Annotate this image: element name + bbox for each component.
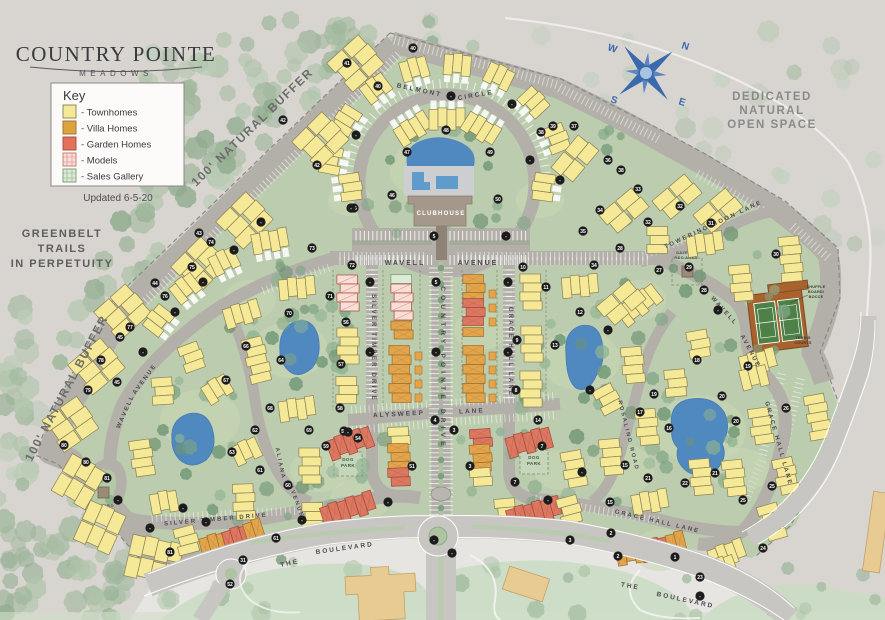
svg-text:CLUBHOUSE: CLUBHOUSE [417, 211, 466, 217]
svg-text:COURTS: COURTS [794, 341, 811, 345]
svg-text:PARK: PARK [341, 463, 355, 468]
svg-text:DOG: DOG [342, 457, 354, 462]
svg-text:TENNIS: TENNIS [795, 336, 810, 340]
svg-text:BOCCE: BOCCE [809, 295, 824, 299]
svg-text:BOARD/: BOARD/ [808, 290, 825, 294]
svg-text:DOG: DOG [528, 455, 540, 460]
svg-text:SHUFFLE: SHUFFLE [807, 285, 826, 289]
svg-text:PARK: PARK [527, 461, 541, 466]
